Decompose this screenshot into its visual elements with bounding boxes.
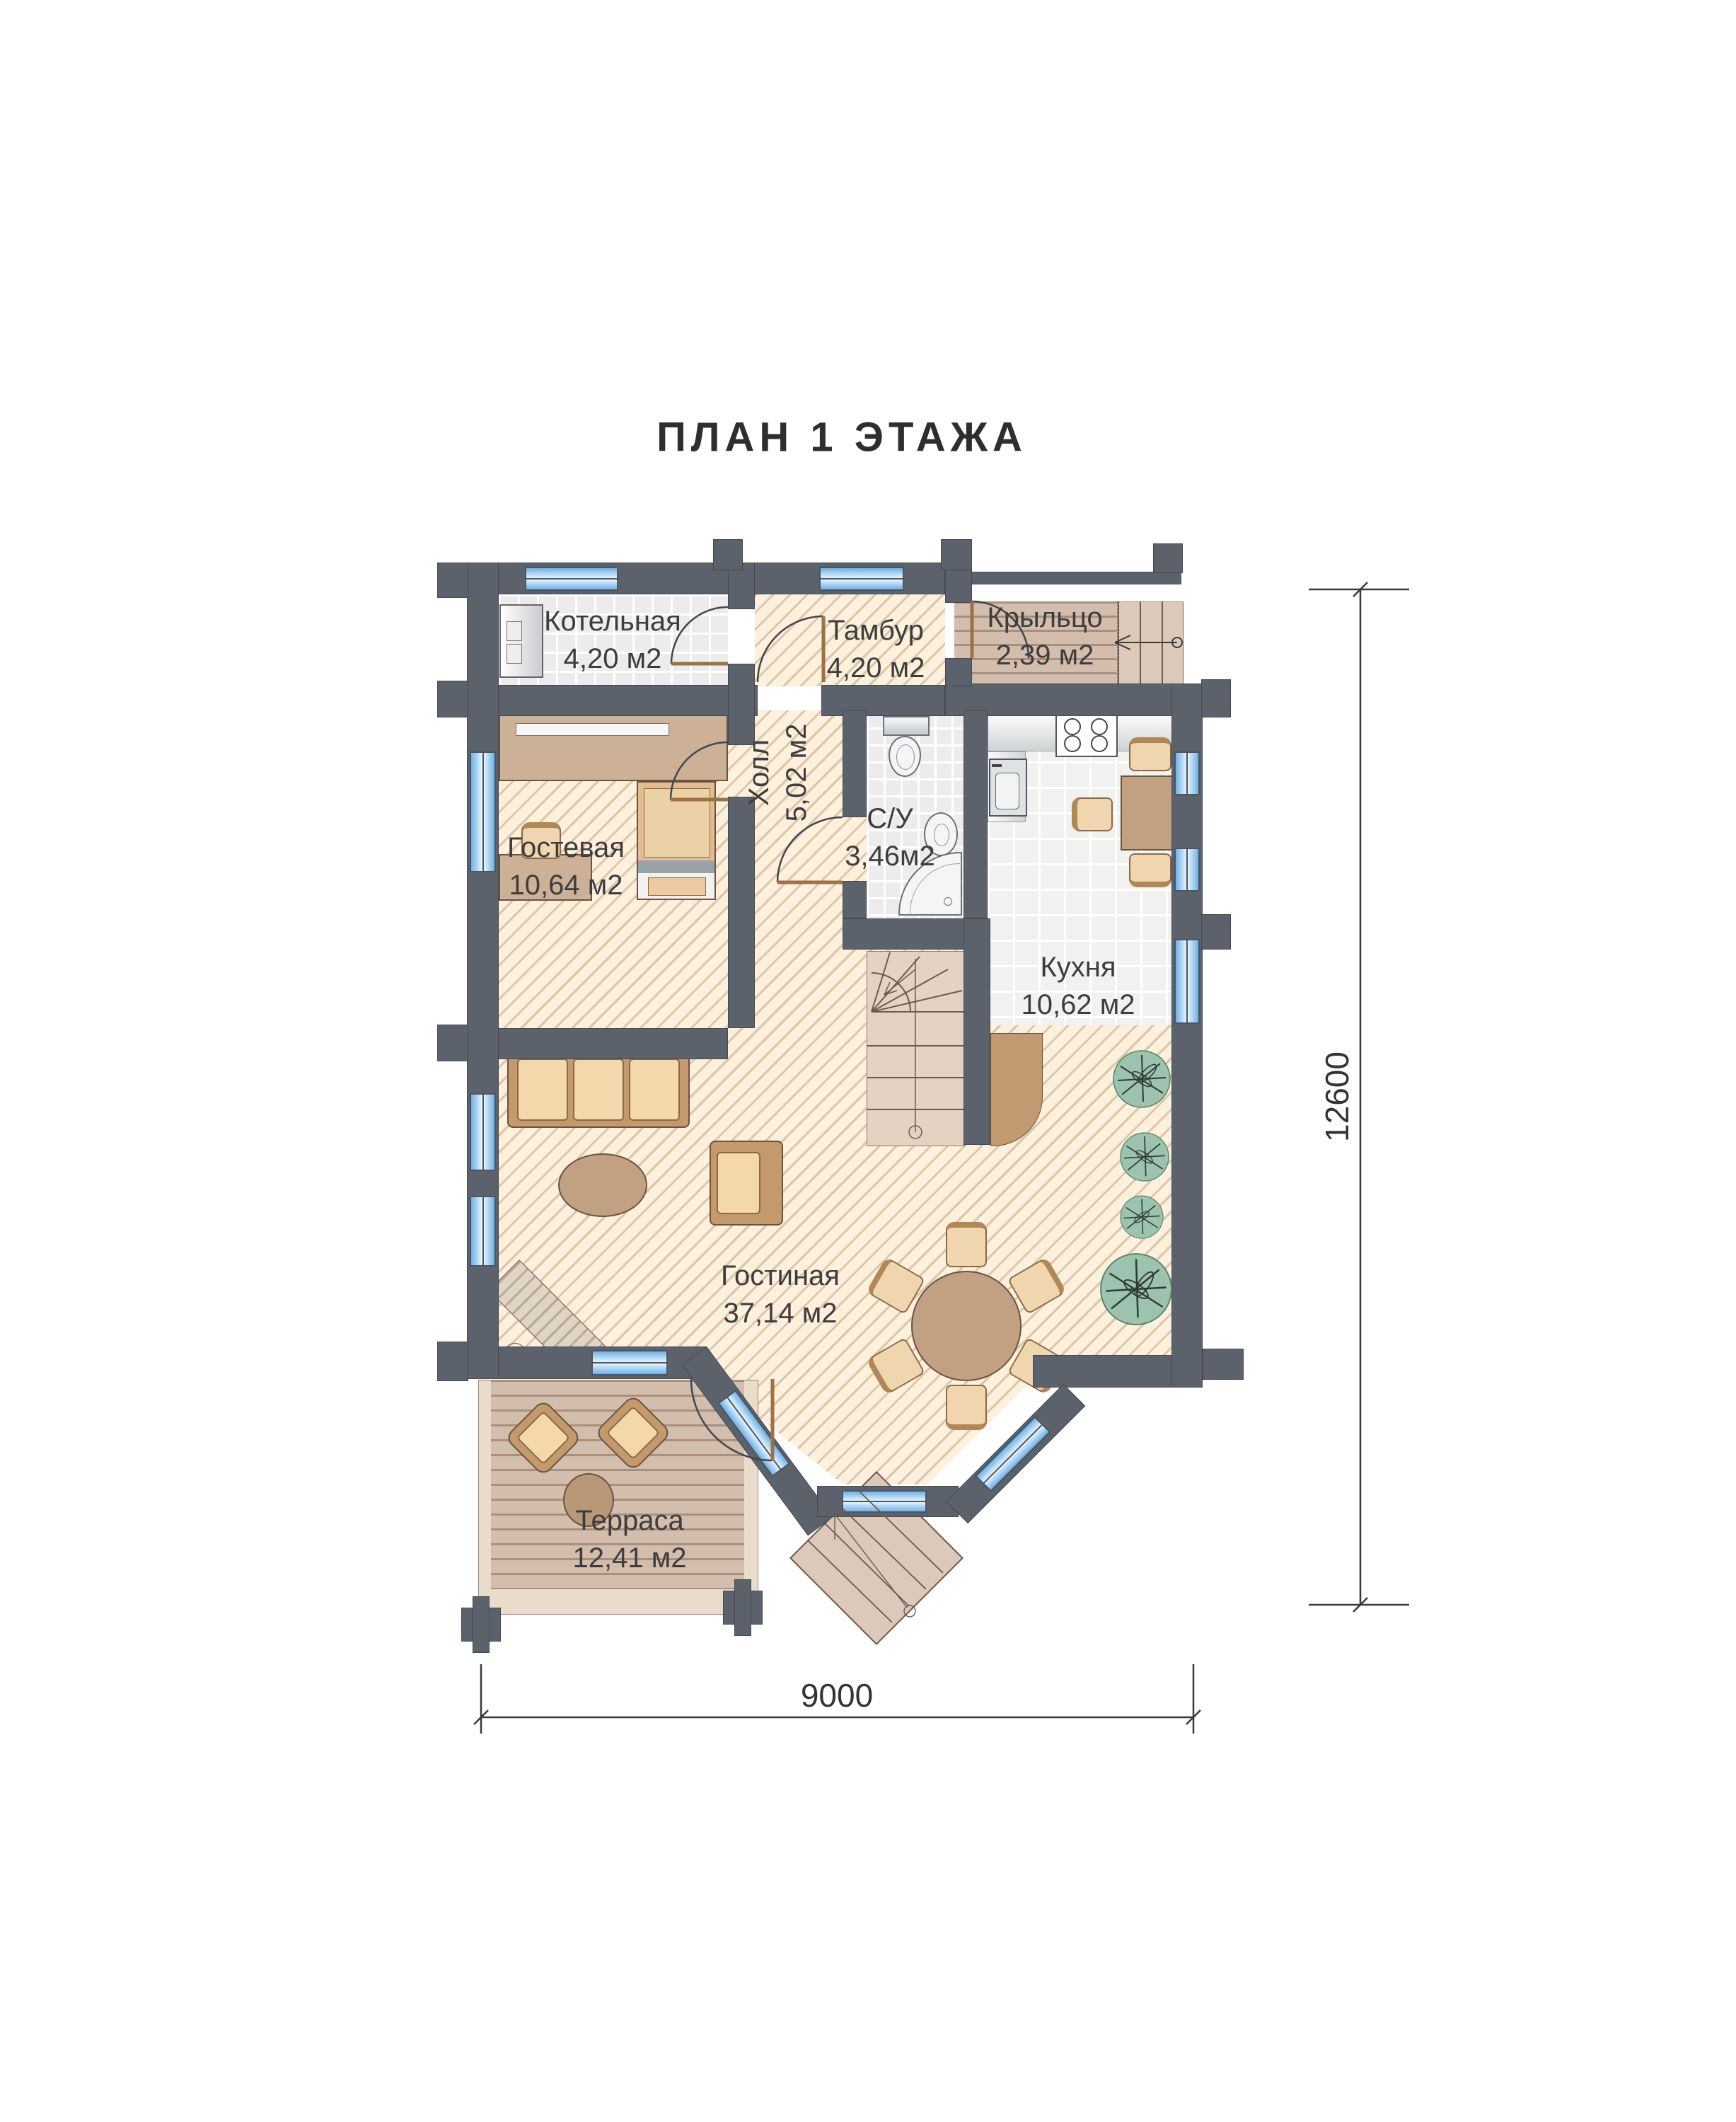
window bbox=[525, 567, 618, 591]
log-post bbox=[1201, 914, 1231, 950]
chair-icon bbox=[1129, 737, 1171, 771]
window bbox=[975, 1416, 1051, 1492]
room-label-bathroom: С/У3,46м2 bbox=[845, 800, 935, 875]
wall bbox=[728, 797, 755, 1028]
window bbox=[591, 1350, 668, 1376]
log-post bbox=[1203, 1349, 1244, 1380]
log-post bbox=[1201, 679, 1231, 717]
stove-icon bbox=[1055, 712, 1118, 757]
log-post bbox=[437, 1025, 468, 1061]
wall bbox=[843, 881, 867, 918]
stairs-floor bbox=[867, 951, 965, 1146]
room-label-living: Гостиная37,14 м2 bbox=[721, 1257, 840, 1332]
wardrobe-icon bbox=[499, 712, 728, 781]
bed-icon bbox=[637, 781, 716, 900]
chair-icon bbox=[946, 1222, 987, 1267]
log-post bbox=[437, 1342, 468, 1381]
dimension-label-vertical: 12600 bbox=[1318, 1051, 1356, 1142]
window bbox=[842, 1490, 927, 1513]
log-post bbox=[734, 1579, 751, 1636]
window bbox=[470, 1196, 496, 1267]
sink-icon bbox=[989, 759, 1027, 817]
log-post bbox=[437, 563, 468, 598]
room-label-kitchen: Кухня10,62 м2 bbox=[1022, 949, 1135, 1024]
wall bbox=[964, 710, 988, 918]
wall bbox=[467, 685, 758, 716]
room-label-vestibule: Тамбур4,20 м2 bbox=[827, 612, 925, 687]
log-post bbox=[713, 539, 743, 570]
log-post bbox=[1153, 543, 1183, 573]
chair-icon bbox=[1129, 853, 1171, 887]
chair-icon bbox=[946, 1385, 987, 1430]
toilet-icon bbox=[883, 716, 930, 736]
coffee-table-icon bbox=[558, 1153, 647, 1217]
dimension-label-horizontal: 9000 bbox=[801, 1676, 873, 1714]
porch-steps-icon bbox=[1117, 601, 1184, 685]
room-label-boiler: Котельная4,20 м2 bbox=[544, 603, 681, 678]
wall bbox=[945, 658, 972, 686]
window bbox=[1174, 939, 1200, 1024]
log-post bbox=[941, 539, 972, 570]
room-label-porch: Крыльцо2,39 м2 bbox=[987, 599, 1102, 674]
window bbox=[1174, 848, 1200, 892]
armchair-icon bbox=[710, 1141, 783, 1226]
window bbox=[470, 1093, 496, 1171]
wall bbox=[964, 918, 990, 1145]
window bbox=[470, 751, 496, 872]
log-post bbox=[437, 681, 468, 717]
window bbox=[819, 567, 904, 591]
log-post bbox=[473, 1596, 490, 1653]
dining-table-icon bbox=[911, 1271, 1022, 1381]
wall bbox=[821, 685, 945, 716]
wall bbox=[467, 1028, 728, 1059]
room-label-hall: Холл5,02 м2 bbox=[741, 724, 816, 822]
boiler-icon bbox=[499, 604, 543, 678]
wall bbox=[945, 572, 1181, 584]
floor-plan-canvas: ПЛАН 1 ЭТАЖА bbox=[0, 0, 1736, 2122]
wall bbox=[467, 1347, 707, 1379]
kitchen-table-icon bbox=[1121, 775, 1174, 850]
window bbox=[1174, 751, 1200, 795]
room-label-guest: Гостевая10,64 м2 bbox=[507, 829, 625, 904]
room-label-terrace: Терраса12,41 м2 bbox=[573, 1502, 687, 1577]
chair-icon bbox=[1072, 797, 1113, 831]
page-title: ПЛАН 1 ЭТАЖА bbox=[656, 414, 1027, 461]
